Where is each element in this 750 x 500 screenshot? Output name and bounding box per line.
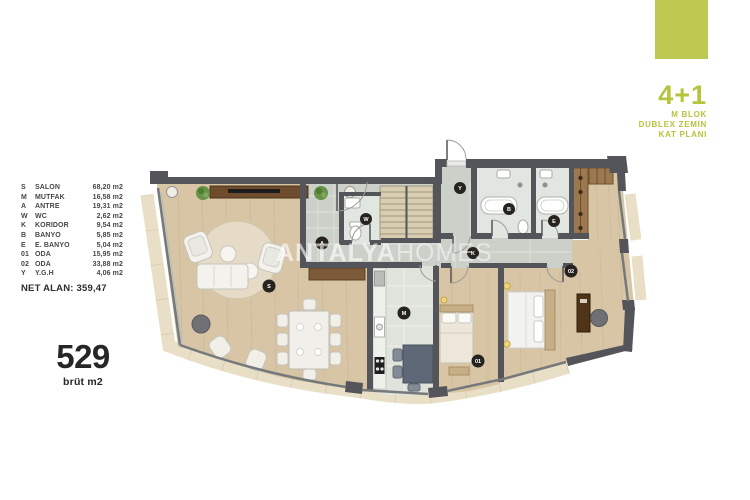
bench-icon — [449, 367, 469, 375]
wardrobe-icon — [589, 168, 613, 184]
ceiling-light-icon — [441, 297, 447, 303]
sconce-icon — [167, 187, 178, 198]
pouf-icon — [220, 246, 236, 262]
svg-text:02: 02 — [568, 269, 574, 275]
badge-wc: W — [360, 213, 372, 225]
kitchen-chair-icon — [393, 366, 402, 378]
fridge-icon — [375, 271, 385, 286]
floor-plan: S M A W K B E 01 02 Y — [0, 0, 750, 500]
svg-text:M: M — [402, 311, 407, 317]
wall-light-icon — [504, 283, 510, 289]
console-cabinet — [309, 268, 365, 280]
tv-icon — [228, 189, 280, 193]
badge-ygh: Y — [454, 182, 466, 194]
kitchen-chair-icon — [393, 349, 402, 361]
stairs — [380, 186, 433, 242]
badge-mutfak: M — [398, 307, 411, 320]
shower-icon — [543, 183, 548, 188]
svg-text:Y: Y — [458, 186, 462, 192]
svg-text:01: 01 — [475, 359, 481, 365]
stool-icon — [591, 310, 608, 327]
badge-oda02: 02 — [565, 265, 578, 278]
plant-icon — [314, 186, 328, 200]
shower-icon — [518, 183, 523, 188]
svg-text:A: A — [320, 241, 324, 247]
bedroom01-furniture — [440, 297, 473, 375]
badge-ebanyo: E — [548, 215, 560, 227]
kitchen-sink-icon — [375, 317, 385, 337]
svg-text:K: K — [471, 251, 475, 257]
kitchen-chair-icon — [408, 384, 420, 391]
plant-icon — [196, 186, 210, 200]
badge-salon: S — [263, 280, 276, 293]
svg-text:S: S — [267, 284, 271, 290]
gray-pouf-icon — [192, 315, 210, 333]
svg-text:W: W — [363, 217, 369, 223]
sink-icon — [497, 170, 510, 178]
svg-text:E: E — [552, 219, 556, 225]
sofa-icon — [197, 264, 248, 289]
wall-light-icon — [504, 341, 510, 347]
cooktop-icon — [375, 357, 385, 374]
badge-banyo: B — [503, 203, 515, 215]
sink-icon — [540, 170, 552, 178]
entry-door-arc — [447, 140, 466, 160]
badge-antre: A — [316, 237, 329, 250]
badge-koridor: K — [467, 247, 479, 259]
toilet-icon — [518, 220, 528, 234]
svg-text:B: B — [507, 207, 511, 213]
badge-oda01: 01 — [472, 355, 485, 368]
kitchen-table — [403, 345, 433, 383]
